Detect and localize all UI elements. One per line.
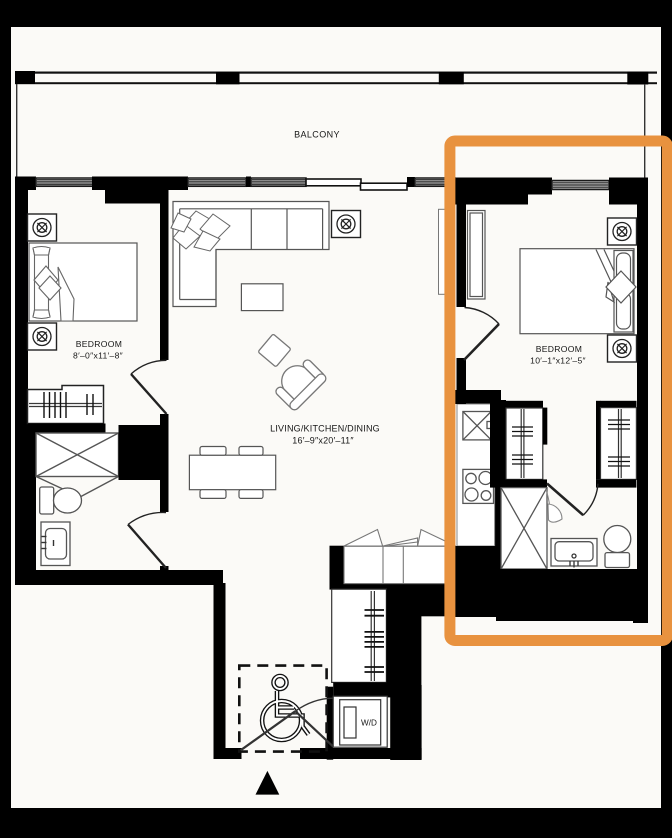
- svg-text:16′–9″x20′–11″: 16′–9″x20′–11″: [292, 436, 354, 446]
- svg-text:BEDROOM: BEDROOM: [536, 344, 583, 354]
- svg-text:W/D: W/D: [361, 719, 377, 728]
- svg-text:10′–1″x12′–5″: 10′–1″x12′–5″: [530, 356, 586, 366]
- svg-text:LIVING/KITCHEN/DINING: LIVING/KITCHEN/DINING: [270, 424, 380, 434]
- svg-text:8′–0″x11′–8″: 8′–0″x11′–8″: [73, 351, 123, 361]
- svg-text:BALCONY: BALCONY: [294, 130, 340, 140]
- svg-text:BEDROOM: BEDROOM: [76, 339, 123, 349]
